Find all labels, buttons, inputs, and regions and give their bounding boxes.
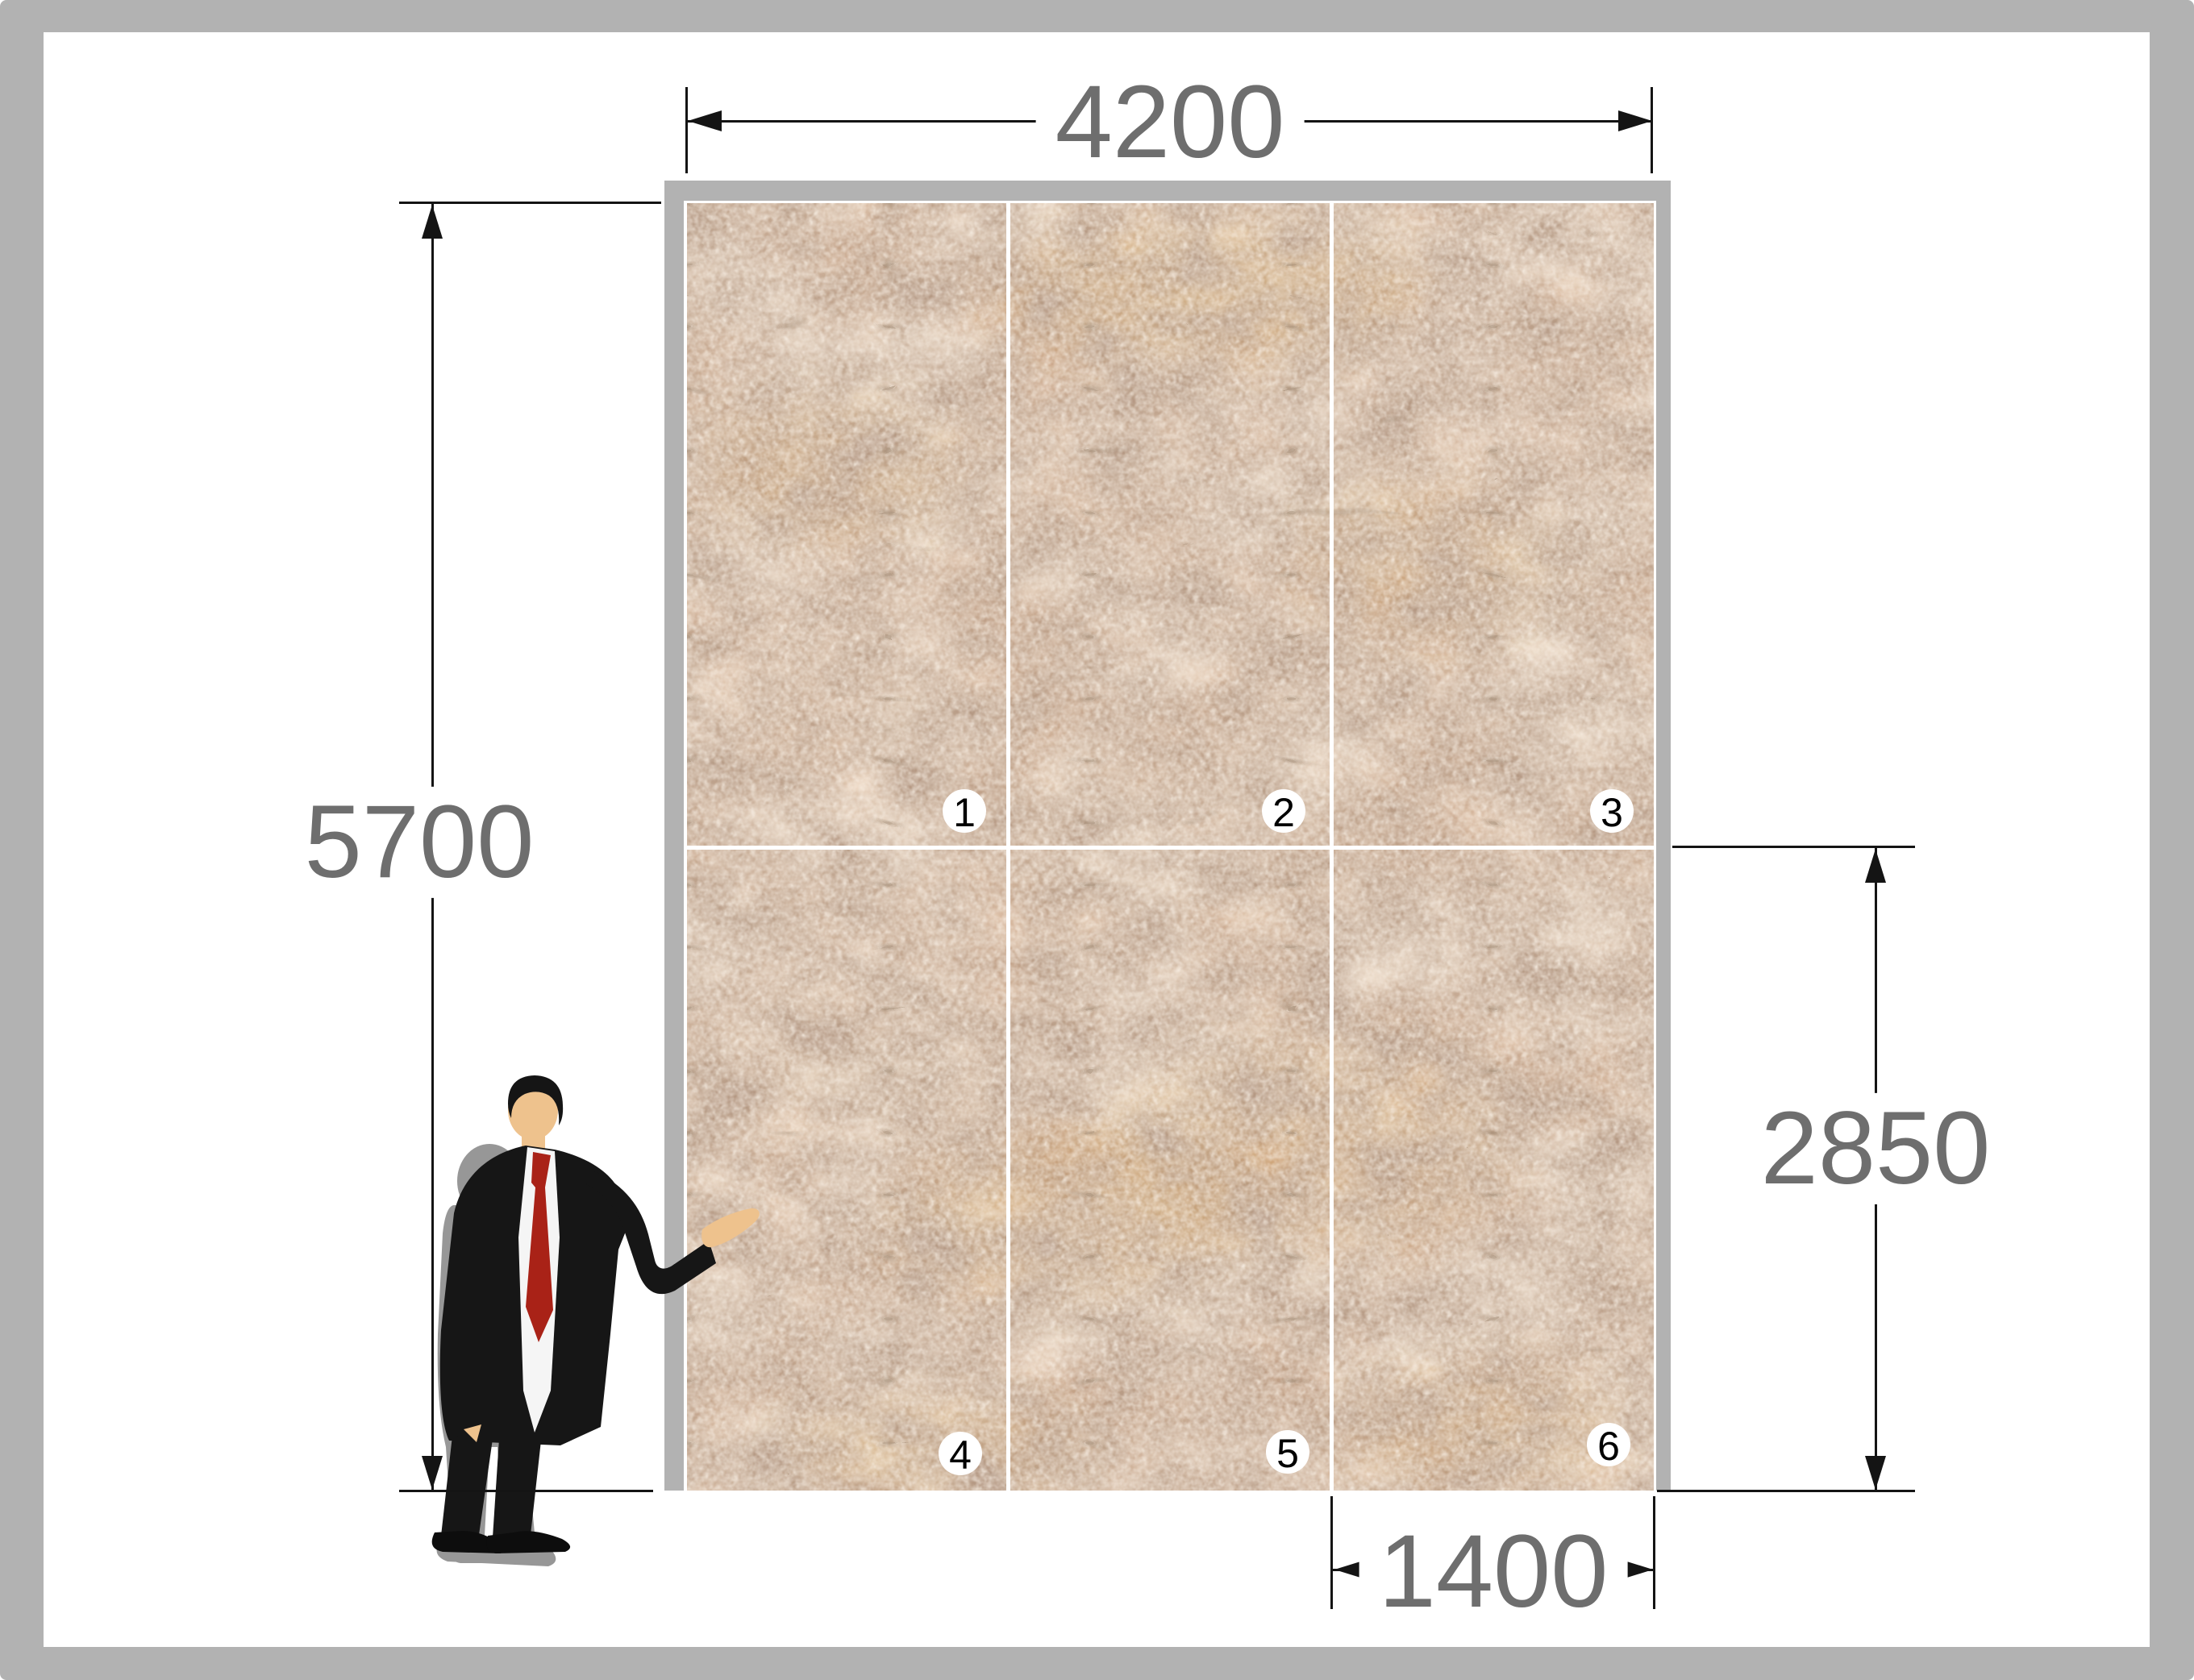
panel-number-3: 3: [1601, 790, 1623, 835]
stone-texture-svg: 1 2 3 4 5: [687, 203, 1654, 1491]
arrow-down-icon: [1865, 1456, 1886, 1490]
stone-panel-grid: 1 2 3 4 5: [687, 203, 1654, 1491]
figure-hand: [701, 1208, 760, 1247]
dimension-value-panel-width: 1400: [1359, 1516, 1628, 1628]
arrow-right-icon: [1618, 110, 1652, 131]
panel-number-6: 6: [1597, 1424, 1620, 1469]
extension-line: [399, 1490, 653, 1492]
panel-number-4: 4: [949, 1433, 972, 1478]
panel-number-2: 2: [1272, 790, 1295, 835]
extension-line: [399, 202, 661, 204]
panel-number-1: 1: [953, 790, 976, 835]
extension-line: [1653, 1496, 1655, 1609]
extension-line: [1672, 846, 1915, 848]
wall-frame-right: [1656, 181, 1671, 1491]
arrow-up-icon: [422, 205, 443, 239]
dimension-value-total-height: 5700: [285, 787, 554, 898]
diagram-stage: 1 2 3 4 5: [0, 0, 2194, 1680]
wall-frame-top: [664, 181, 1671, 201]
extension-line: [1330, 1496, 1333, 1609]
panel-number-5: 5: [1276, 1431, 1299, 1476]
figure-shoe-right: [486, 1531, 570, 1553]
businessman-svg: [367, 1068, 762, 1568]
arrow-up-icon: [1865, 849, 1886, 883]
scale-figure-businessman: [367, 1068, 762, 1568]
arrow-down-icon: [422, 1456, 443, 1490]
arrow-left-icon: [688, 110, 722, 131]
dimension-value-panel-height: 2850: [1742, 1093, 2010, 1204]
dimension-value-total-width: 4200: [1036, 67, 1305, 178]
